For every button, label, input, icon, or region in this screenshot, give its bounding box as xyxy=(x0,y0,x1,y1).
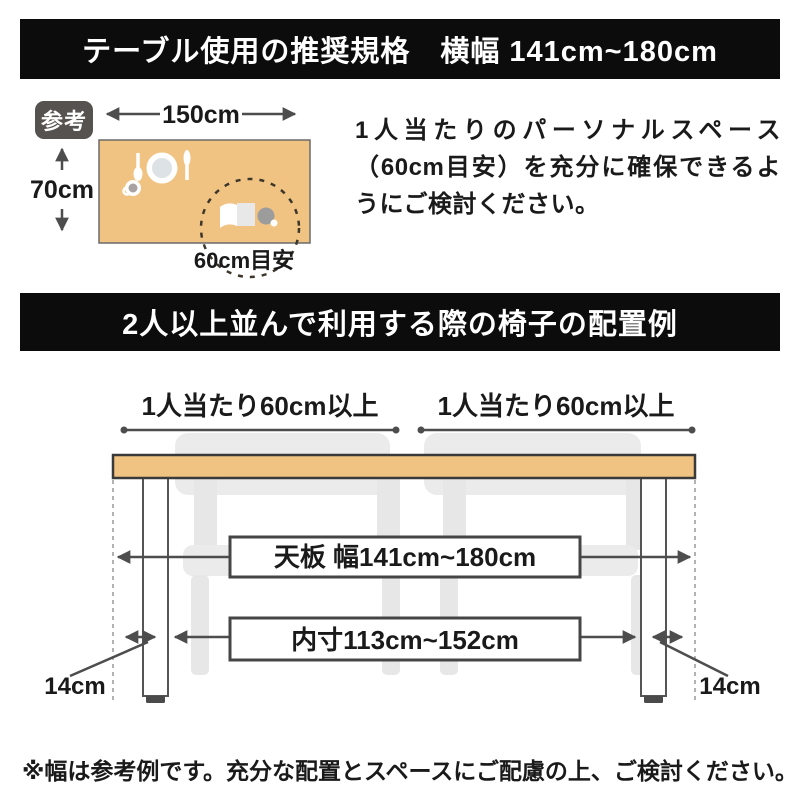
dot xyxy=(418,427,425,434)
dot xyxy=(689,427,696,434)
table-depth-label: 70cm xyxy=(30,176,94,204)
tabletop xyxy=(113,455,695,478)
chair-layout-diagram: 1人当たり60cm以上 1人当たり60cm以上 天板 幅141cm~180cm … xyxy=(0,360,800,720)
leg-offset-callout-right xyxy=(660,642,728,676)
tabletop-width-label: 天板 幅141cm~180cm xyxy=(274,542,536,572)
per-person-label-left: 1人当たり60cm以上 xyxy=(142,391,379,421)
footer-note: ※幅は参考例です。充分な配置とスペースにご配慮の上、ご検討ください。 xyxy=(22,752,792,786)
header-banner: テーブル使用の推奨規格 横幅 141cm~180cm xyxy=(20,19,780,79)
table-leg-right xyxy=(641,478,666,696)
personal-space-label: 60cm目安 xyxy=(194,248,294,273)
section-banner: 2人以上並んで利用する際の椅子の配置例 xyxy=(20,293,780,351)
leg-offset-callout-left xyxy=(70,642,148,676)
leg-foot-left xyxy=(146,696,165,703)
dot xyxy=(121,427,128,434)
leg-offset-label-left: 14cm xyxy=(44,673,105,700)
plate-inner xyxy=(152,158,172,178)
section-banner-title: 2人以上並んで利用する際の椅子の配置例 xyxy=(122,301,678,343)
table-size-infographic: { "banners": { "top": "テーブル使用の推奨規格 横幅 14… xyxy=(0,0,800,800)
dot xyxy=(393,427,400,434)
table-width-label: 150cm xyxy=(162,101,240,129)
per-person-label-right: 1人当たり60cm以上 xyxy=(438,391,675,421)
personal-space-description: 1人当たりのパーソナルスペース（60cm目安）を充分に確保できるようにご検討くだ… xyxy=(355,112,781,223)
header-banner-title: テーブル使用の推奨規格 横幅 141cm~180cm xyxy=(82,28,718,70)
table-leg-left xyxy=(143,478,168,696)
inner-width-label: 内寸113cm~152cm xyxy=(291,625,519,655)
leg-foot-right xyxy=(644,696,663,703)
book-icon xyxy=(220,203,255,228)
leg-offset-label-right: 14cm xyxy=(699,673,760,700)
table-top-view-diagram: 150cm 70cm 60cm目安 xyxy=(20,95,340,290)
